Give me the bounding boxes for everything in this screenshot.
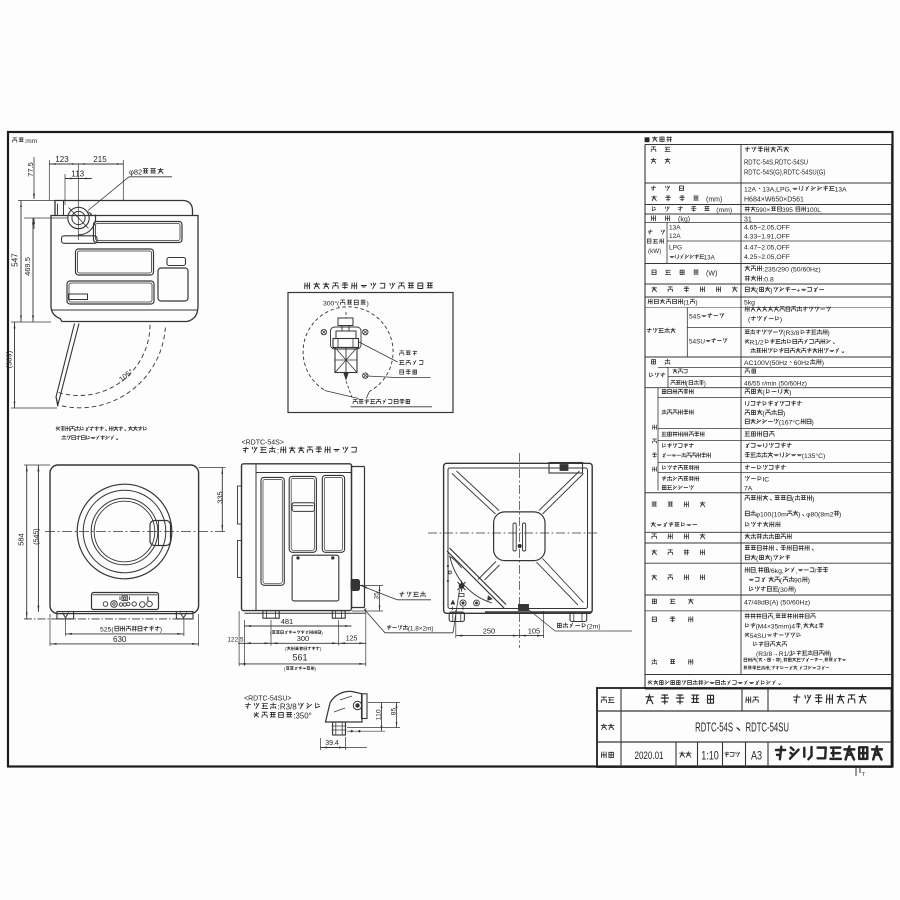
svg-text:590×: 590× bbox=[756, 207, 771, 214]
svg-text:φ82: φ82 bbox=[129, 168, 142, 177]
svg-text:13A: 13A bbox=[669, 225, 681, 232]
svg-text:12A: 12A bbox=[744, 187, 757, 194]
svg-text:4.33~1.91,OFF: 4.33~1.91,OFF bbox=[744, 234, 790, 241]
svg-text:),: ), bbox=[780, 658, 783, 664]
svg-text:): ) bbox=[770, 288, 772, 295]
svg-text:300: 300 bbox=[297, 634, 310, 643]
svg-text:85: 85 bbox=[391, 708, 398, 716]
svg-text:,: , bbox=[823, 658, 824, 664]
svg-text:RDTC-54SU: RDTC-54SU bbox=[746, 721, 790, 735]
svg-text:4.47~2.05,OFF: 4.47~2.05,OFF bbox=[744, 245, 790, 252]
svg-text:(30: (30 bbox=[778, 587, 788, 594]
svg-text:(mm): (mm) bbox=[716, 207, 732, 214]
svg-text:AC100V(50Hz: AC100V(50Hz bbox=[744, 360, 788, 367]
svg-text:4.65~2.05,OFF: 4.65~2.05,OFF bbox=[744, 225, 790, 232]
svg-text:(2m): (2m) bbox=[587, 624, 601, 631]
svg-text:77.5: 77.5 bbox=[26, 162, 35, 177]
svg-text:H684×W650×D561: H684×W650×D561 bbox=[744, 197, 804, 204]
svg-text:584: 584 bbox=[17, 533, 26, 546]
svg-text:(M4×35mm)4: (M4×35mm)4 bbox=[756, 624, 796, 631]
svg-text:(W): (W) bbox=[706, 271, 717, 278]
svg-text:4: 4 bbox=[814, 624, 818, 631]
svg-text:/: / bbox=[815, 568, 817, 575]
svg-text:A3: A3 bbox=[751, 751, 762, 763]
svg-text:): ) bbox=[812, 496, 814, 503]
svg-text:,: , bbox=[795, 568, 797, 575]
svg-text:(167°C: (167°C bbox=[779, 419, 800, 427]
svg-text:13A: 13A bbox=[704, 255, 716, 262]
svg-text:(kW): (kW) bbox=[648, 248, 661, 255]
svg-text:100L: 100L bbox=[806, 207, 821, 214]
svg-text:T: T bbox=[862, 772, 865, 778]
svg-text:90: 90 bbox=[794, 578, 802, 585]
svg-text:335: 335 bbox=[215, 491, 224, 504]
svg-text:(1: (1 bbox=[683, 300, 689, 307]
svg-text:RDTC-54S,RDTC-54SU: RDTC-54S,RDTC-54SU bbox=[744, 160, 808, 167]
svg-text:): ) bbox=[828, 330, 830, 337]
svg-text:RDTC-54S(G),RDTC-54SU(G): RDTC-54S(G),RDTC-54SU(G) bbox=[744, 170, 825, 177]
svg-text:): ) bbox=[783, 411, 785, 418]
svg-text:60Hz: 60Hz bbox=[794, 360, 810, 367]
svg-text:): ) bbox=[808, 578, 810, 585]
svg-text:110: 110 bbox=[376, 709, 383, 720]
svg-text:123: 123 bbox=[55, 155, 69, 164]
svg-text:): ) bbox=[789, 390, 791, 397]
svg-text:): ) bbox=[839, 512, 841, 519]
svg-text:,: , bbox=[773, 614, 775, 621]
svg-text:/6kg,: /6kg, bbox=[769, 568, 784, 575]
svg-text:(545): (545) bbox=[33, 528, 40, 544]
svg-text:): ) bbox=[780, 317, 782, 324]
svg-text:+: + bbox=[796, 288, 800, 295]
svg-text:,: , bbox=[756, 568, 758, 575]
svg-text:250: 250 bbox=[483, 626, 496, 635]
svg-text:): ) bbox=[770, 556, 772, 563]
svg-text:561: 561 bbox=[293, 653, 308, 663]
svg-text:): ) bbox=[798, 512, 800, 519]
svg-text:525(: 525( bbox=[100, 627, 114, 634]
svg-text::R3/8: :R3/8 bbox=[278, 703, 298, 712]
svg-text:,: , bbox=[801, 624, 803, 631]
svg-text:,: , bbox=[797, 666, 798, 672]
svg-text:300°(: 300°( bbox=[323, 300, 340, 308]
svg-text:φ80(8m2: φ80(8m2 bbox=[806, 512, 834, 519]
svg-text:47/48dB(A) (50/60Hz): 47/48dB(A) (50/60Hz) bbox=[744, 600, 810, 607]
svg-text:RDTC-54S: RDTC-54S bbox=[695, 721, 733, 735]
svg-text:13A: 13A bbox=[835, 187, 848, 194]
svg-text:481: 481 bbox=[281, 617, 294, 626]
svg-text::350°: :350° bbox=[293, 712, 311, 721]
svg-text:(mm): (mm) bbox=[706, 197, 722, 204]
svg-text:1:10: 1:10 bbox=[701, 751, 719, 763]
svg-text::235/290 (50/60Hz): :235/290 (50/60Hz) bbox=[762, 267, 820, 274]
svg-text:12A: 12A bbox=[669, 233, 681, 240]
svg-text:54S: 54S bbox=[689, 314, 701, 321]
svg-text:4.25~2.05,OFF: 4.25~2.05,OFF bbox=[744, 254, 790, 261]
svg-text:,: , bbox=[769, 666, 770, 672]
svg-text:46/55 r/min (50/60Hz): 46/55 r/min (50/60Hz) bbox=[744, 381, 807, 388]
svg-text:5kg: 5kg bbox=[744, 300, 755, 307]
svg-text:): ) bbox=[812, 420, 814, 427]
svg-text:): ) bbox=[695, 300, 697, 307]
svg-text:φ100(10m: φ100(10m bbox=[756, 512, 788, 519]
svg-text:547: 547 bbox=[11, 253, 20, 267]
svg-text:469.5: 469.5 bbox=[23, 257, 32, 276]
svg-text:(R3/8: (R3/8 bbox=[783, 330, 799, 337]
svg-text::mm: :mm bbox=[25, 138, 38, 145]
svg-text::: : bbox=[277, 447, 279, 456]
svg-text:7A: 7A bbox=[744, 486, 753, 493]
svg-text:): ) bbox=[704, 381, 706, 388]
svg-text:(389): (389) bbox=[5, 350, 14, 368]
svg-text:): ) bbox=[160, 627, 162, 634]
svg-text:R1/2: R1/2 bbox=[750, 340, 764, 347]
svg-text:<RDTC-54SU>: <RDTC-54SU> bbox=[244, 696, 291, 703]
svg-text:): ) bbox=[829, 651, 831, 658]
svg-text:13A,LPG,: 13A,LPG, bbox=[762, 187, 792, 194]
svg-text:122.5: 122.5 bbox=[228, 636, 244, 643]
svg-text:39.4: 39.4 bbox=[325, 740, 339, 747]
svg-text:LPG: LPG bbox=[669, 245, 682, 252]
svg-text:105: 105 bbox=[528, 626, 541, 635]
svg-text:): ) bbox=[367, 301, 369, 308]
svg-text:215: 215 bbox=[93, 155, 107, 164]
svg-text:(R3/8→R1/2: (R3/8→R1/2 bbox=[756, 651, 793, 658]
svg-text:(135°C): (135°C) bbox=[802, 452, 826, 460]
svg-text:<RDTC-54S>: <RDTC-54S> bbox=[242, 440, 284, 447]
svg-text:): ) bbox=[794, 587, 796, 594]
svg-text:(1.8×2m): (1.8×2m) bbox=[408, 626, 434, 633]
svg-text:395: 395 bbox=[782, 207, 793, 214]
svg-text:125: 125 bbox=[346, 635, 358, 642]
svg-text:): ) bbox=[822, 360, 824, 367]
svg-text:54SU: 54SU bbox=[750, 633, 767, 640]
svg-text:54SU: 54SU bbox=[689, 339, 705, 346]
svg-text::0.8: :0.8 bbox=[762, 277, 774, 284]
svg-text:IC: IC bbox=[762, 477, 769, 484]
svg-text:630: 630 bbox=[113, 635, 127, 644]
svg-text:2020.01: 2020.01 bbox=[635, 750, 664, 762]
